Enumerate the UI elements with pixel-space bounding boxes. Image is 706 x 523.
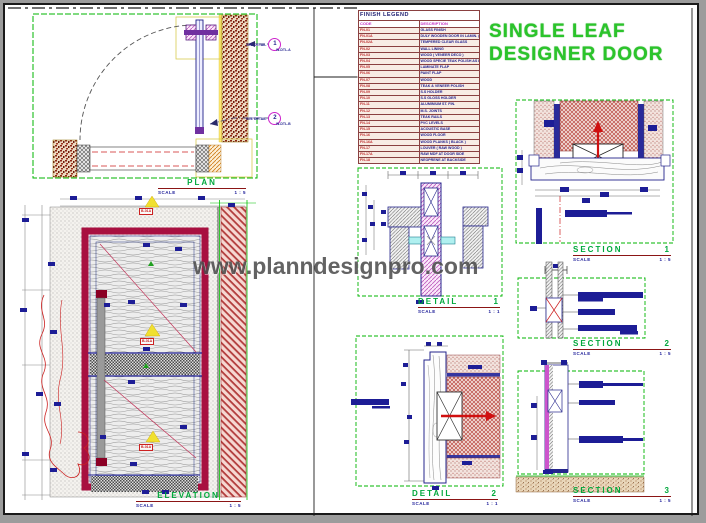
section3-label-num: 3 — [665, 486, 671, 495]
callout-2: SEE DETAIL 2 W-DTL.B — [246, 112, 281, 125]
plan-label: PLAN SCALE1 : 5 — [158, 178, 246, 195]
legend-col-code: CODE — [359, 21, 420, 28]
scale-word: SCALE — [418, 309, 436, 314]
section1-view — [516, 100, 673, 244]
detail1-label-text: DETAIL — [418, 297, 458, 306]
legend-desc-cell: DULY WOODEN DOOR IN LAMIN. (FL-01) — [419, 34, 480, 40]
elevation-label-text: ELEVATION — [157, 491, 220, 500]
detail2-view — [351, 336, 503, 490]
plan-label-text: PLAN — [187, 178, 217, 187]
detail1-label-num: 1 — [494, 297, 500, 306]
detail2-label: DETAIL2 SCALE1 : 1 — [412, 489, 498, 506]
legend-code-cell: FN-18 — [359, 158, 420, 164]
scale-word: SCALE — [573, 498, 591, 503]
section2-label-num: 2 — [665, 339, 671, 348]
legend-rows: FN-01 GLASS FINISH FN-01A DULY WOODEN DO… — [359, 28, 480, 164]
legend-title: FINISH LEGEND — [359, 11, 480, 21]
scale-word: SCALE — [412, 501, 430, 506]
legend-desc-cell: NEOPRENE AT BACKSIDE — [419, 158, 480, 164]
elevation-tag: B-01A — [140, 338, 154, 345]
scale-value: 1 : 5 — [659, 257, 671, 262]
section1-label-text: SECTION — [573, 245, 623, 254]
drawing-title: SINGLE LEAF DESIGNER DOOR — [489, 20, 689, 66]
scale-value: 1 : 1 — [486, 501, 498, 506]
elevation-tag: B-01A — [139, 444, 153, 451]
detail1-view — [358, 168, 502, 304]
elevation-label: ELEVATION SCALE1 : 5 — [136, 491, 241, 508]
legend-row: FN-18 NEOPRENE AT BACKSIDE — [359, 158, 480, 164]
callout-lead: SEE DETAIL — [246, 43, 266, 47]
watermark-text: www.planndesignpro.com — [193, 253, 513, 280]
scale-value: 1 : 5 — [659, 351, 671, 356]
detail1-label: DETAIL1 SCALE1 : 1 — [418, 297, 500, 314]
section2-view — [518, 262, 645, 338]
callout-ref: W-DTL.B — [276, 122, 291, 126]
elevation-view — [20, 196, 256, 500]
scale-word: SCALE — [573, 351, 591, 356]
cad-screenshot: { "title": { "line1": "SINGLE LEAF", "li… — [0, 0, 706, 523]
scale-value: 1 : 5 — [659, 498, 671, 503]
section1-label-num: 1 — [665, 245, 671, 254]
legend-desc-cell: WOOD SPECIE TEAK POLISH AS PER FINISH — [419, 59, 480, 65]
legend-col-desc: DESCRIPTION — [419, 21, 480, 28]
scale-word: SCALE — [136, 503, 154, 508]
section3-label: SECTION3 SCALE1 : 5 — [573, 486, 671, 503]
scale-word: SCALE — [573, 257, 591, 262]
drawing-title-line1: SINGLE LEAF — [489, 20, 689, 43]
callout-ref: W-DTL.A — [276, 48, 291, 52]
callout-1: SEE DETAIL 1 W-DTL.A — [246, 38, 281, 51]
section2-label: SECTION2 SCALE1 : 5 — [573, 339, 671, 356]
door-swing-arc — [80, 25, 195, 140]
section3-view — [516, 360, 644, 492]
elevation-tag: B-01A — [139, 208, 153, 215]
drawing-title-line2: DESIGNER DOOR — [489, 43, 689, 66]
scale-value: 1 : 5 — [234, 190, 246, 195]
plan-view — [33, 14, 279, 178]
callout-lead: SEE DETAIL — [246, 117, 266, 121]
finish-legend-table: FINISH LEGEND CODE DESCRIPTION FN-01 GLA… — [358, 10, 480, 164]
section2-label-text: SECTION — [573, 339, 623, 348]
scale-value: 1 : 1 — [488, 309, 500, 314]
detail2-label-num: 2 — [492, 489, 498, 498]
section1-label: SECTION1 SCALE1 : 5 — [573, 245, 671, 262]
detail2-label-text: DETAIL — [412, 489, 452, 498]
scale-word: SCALE — [158, 190, 176, 195]
scale-value: 1 : 5 — [229, 503, 241, 508]
section3-label-text: SECTION — [573, 486, 623, 495]
